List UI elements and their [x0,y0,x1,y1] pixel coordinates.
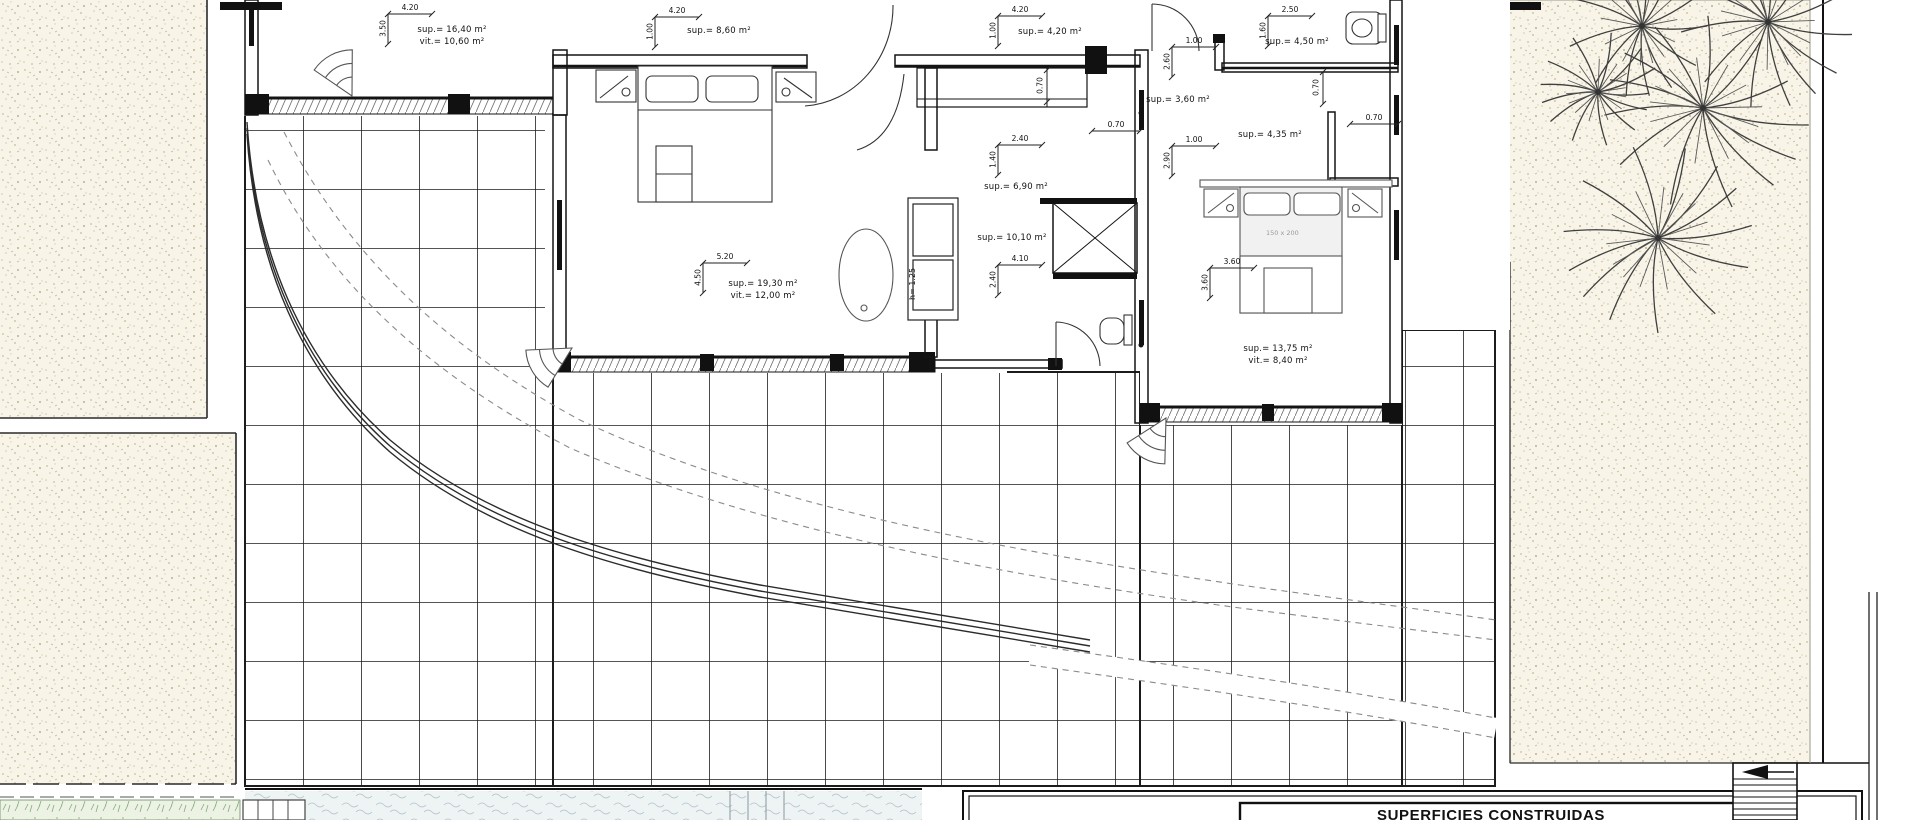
toilet-icon [1100,315,1132,345]
cabinet-icon [908,198,958,320]
floor-plan-sheet: sup.= 16,40 m²vit.= 10,60 m²sup.= 8,60 m… [0,0,1920,820]
stairs [1733,763,1797,820]
dining-table-icon [839,229,893,321]
wc-bathroom1-icon [1346,12,1386,44]
pool-steps [243,800,305,820]
title-block-title: SUPERFICIES CONSTRUIDAS [1240,807,1742,820]
garden-left [0,0,236,784]
pool [245,789,922,820]
lawn [0,797,240,820]
sheet-border [1810,0,1877,820]
floor-plan-drawing [0,0,1920,820]
